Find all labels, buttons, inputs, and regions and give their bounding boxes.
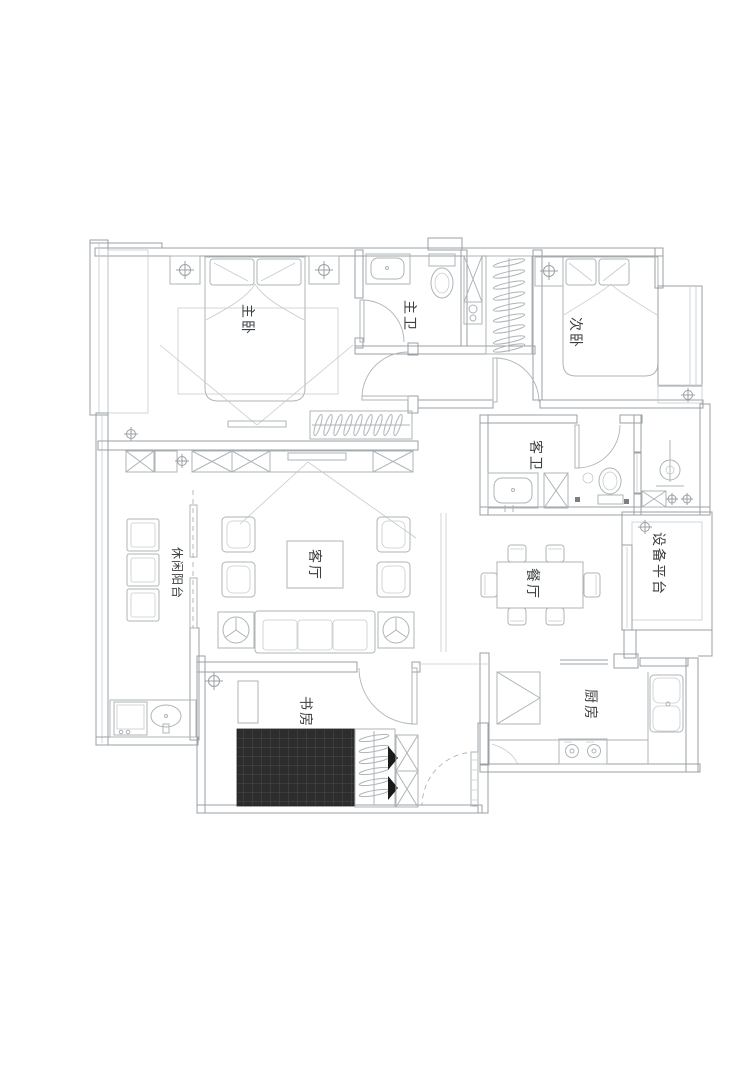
floor-plan-canvas: 主卧 主卫 次卧 客卫 客厅 餐厅 休闲阳台 书房 厨房 设备平台 xyxy=(0,0,750,1071)
stove xyxy=(559,739,607,764)
light-symbol xyxy=(315,261,333,279)
master-door-leaf xyxy=(362,396,408,400)
armchair xyxy=(377,562,410,597)
sofa xyxy=(255,611,375,653)
kitchen-sink xyxy=(650,675,683,732)
dining-chair xyxy=(546,545,564,562)
desk xyxy=(238,681,258,723)
master-door-swing xyxy=(362,352,408,398)
cabinet-band xyxy=(126,451,413,472)
label-dining-room: 餐厅 xyxy=(525,568,541,600)
heater-area xyxy=(642,440,684,507)
light-symbol xyxy=(681,493,693,505)
label-living-room: 客厅 xyxy=(307,549,323,581)
dining-chair xyxy=(584,573,600,597)
living-room xyxy=(126,451,416,653)
dining-chair xyxy=(546,608,564,625)
entry-door-swing xyxy=(422,752,476,806)
light-symbol xyxy=(124,427,138,441)
sliding-door-panel xyxy=(190,505,197,557)
study-door-swing xyxy=(359,668,415,724)
tv-master xyxy=(228,421,286,427)
balcony-chair xyxy=(127,519,159,551)
rug xyxy=(178,308,338,394)
toilet-tank xyxy=(598,495,623,504)
label-master-bedroom: 主卧 xyxy=(240,304,256,336)
fridge xyxy=(497,672,540,724)
study xyxy=(237,668,418,807)
light-symbol xyxy=(176,261,194,279)
master-bedroom xyxy=(160,256,412,439)
tv-living xyxy=(288,453,346,460)
side-table xyxy=(218,612,254,648)
leisure-balcony xyxy=(110,490,197,737)
label-second-bedroom: 次卧 xyxy=(568,317,584,349)
bedroom-door-leaf xyxy=(493,358,497,402)
guest-bath xyxy=(488,425,629,512)
entry xyxy=(422,752,478,806)
guest-bath-door-swing xyxy=(577,425,620,468)
label-guest-bath: 客卫 xyxy=(528,440,544,472)
dining-chair xyxy=(481,573,497,597)
sliding-door-panel xyxy=(190,578,197,628)
bedroom-door-swing xyxy=(495,358,539,402)
label-leisure-balcony: 休闲阳台 xyxy=(170,547,185,599)
armchair xyxy=(222,517,255,552)
light-symbol xyxy=(540,262,558,280)
armchair xyxy=(222,562,255,597)
light-symbol xyxy=(666,493,678,505)
second-bedroom xyxy=(493,257,702,403)
master-wardrobe xyxy=(310,411,412,439)
guest-bath-door-leaf xyxy=(575,425,579,468)
corner-counter xyxy=(492,744,518,765)
balcony-chair xyxy=(127,589,159,621)
washing-machine xyxy=(114,702,147,735)
bay-window xyxy=(658,286,702,403)
wash-basin xyxy=(151,705,181,733)
label-master-bath: 主卫 xyxy=(402,300,418,332)
dining-chair xyxy=(508,545,526,562)
side-table xyxy=(378,612,414,648)
label-equipment-platform: 设备平台 xyxy=(651,532,667,596)
bath-door-leaf xyxy=(360,300,364,342)
light-symbol xyxy=(205,672,223,690)
balcony-chair xyxy=(127,554,159,586)
toilet-bowl xyxy=(431,268,453,298)
dining-chair xyxy=(508,608,526,625)
study-wardrobe xyxy=(396,735,418,807)
floor-drain xyxy=(583,473,593,483)
label-study: 书房 xyxy=(298,696,314,728)
study-door-leaf xyxy=(412,668,417,724)
floor-plan-drawing: 主卧 主卫 次卧 客卫 客厅 餐厅 休闲阳台 书房 厨房 设备平台 xyxy=(0,0,750,1071)
bath-door-swing xyxy=(362,300,404,342)
walkin-closet xyxy=(464,256,532,354)
walls xyxy=(90,238,712,813)
label-kitchen: 厨房 xyxy=(583,689,599,721)
tatami-platform xyxy=(237,729,355,806)
